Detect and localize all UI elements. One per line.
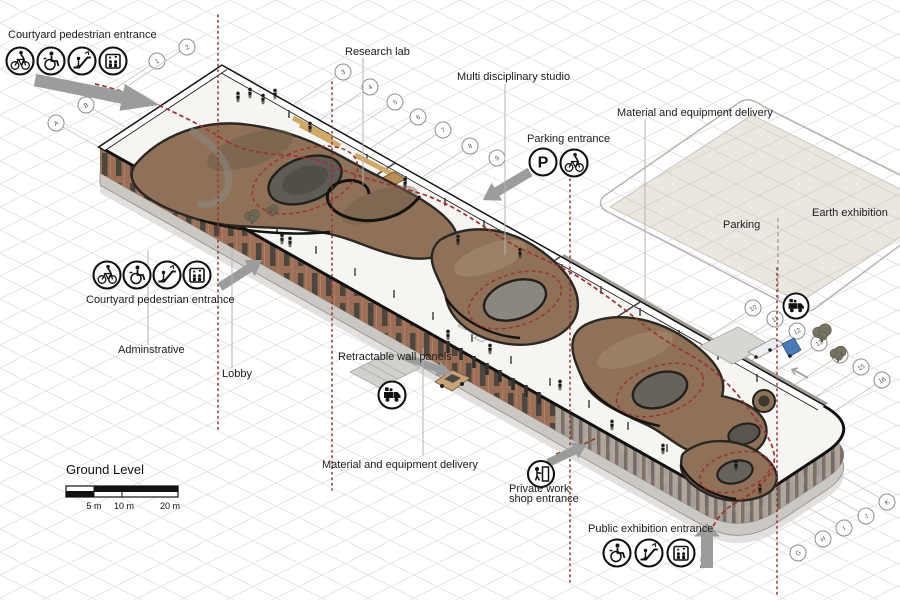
site-plan-drawing: 1 2 3 4 5 6 7 8 9 10 11 12 13 14 15 16 A… bbox=[0, 0, 900, 600]
scale-tick-5m: 5 m bbox=[86, 501, 101, 511]
delivery-truck-icon bbox=[783, 293, 808, 318]
wheelchair-icon bbox=[38, 48, 65, 75]
label-public-exhibition: Public exhibition entrance bbox=[588, 523, 713, 535]
escalator-icon bbox=[69, 48, 96, 75]
parking-icon: P bbox=[530, 149, 557, 176]
label-parking-area: Parking bbox=[723, 219, 760, 231]
delivery-truck-icon bbox=[379, 382, 406, 409]
public-exhibition-icons bbox=[604, 540, 695, 567]
wheelchair-icon bbox=[124, 262, 151, 289]
label-retractable-panels: Retractable wall panels bbox=[338, 351, 452, 363]
bicycle-icon bbox=[94, 262, 121, 289]
elevator-icon bbox=[668, 540, 695, 567]
escalator-icon bbox=[636, 540, 663, 567]
label-multi-studio: Multi disciplinary studio bbox=[457, 71, 570, 83]
elevator-icon bbox=[100, 48, 127, 75]
escalator-icon bbox=[154, 262, 181, 289]
label-earth-exhibition: Earth exhibition bbox=[812, 207, 888, 219]
label-research-lab: Research lab bbox=[345, 46, 410, 58]
label-courtyard-entrance-left: Courtyard pedestrian entrance bbox=[86, 294, 235, 306]
label-lobby: Lobby bbox=[222, 368, 252, 380]
bicycle-icon bbox=[7, 48, 34, 75]
label-administrative: Adminstrative bbox=[118, 344, 185, 356]
wheelchair-icon bbox=[604, 540, 631, 567]
label-private-workshop-2: shop entrance bbox=[509, 493, 579, 505]
scale-tick-10m: 10 m bbox=[114, 501, 134, 511]
scale-bar-title: Ground Level bbox=[66, 462, 144, 477]
label-material-delivery-bottom: Material and equipment delivery bbox=[322, 459, 478, 471]
label-parking-entrance: Parking entrance bbox=[527, 133, 610, 145]
svg-text:P: P bbox=[538, 155, 549, 172]
scale-tick-20m: 20 m bbox=[160, 501, 180, 511]
site-plan-page: 1 2 3 4 5 6 7 8 9 10 11 12 13 14 15 16 A… bbox=[0, 0, 900, 600]
label-material-delivery-top: Material and equipment delivery bbox=[617, 107, 773, 119]
elevator-icon bbox=[184, 262, 211, 289]
bicycle-icon bbox=[561, 150, 588, 177]
label-courtyard-entrance-top: Courtyard pedestrian entrance bbox=[8, 29, 157, 41]
